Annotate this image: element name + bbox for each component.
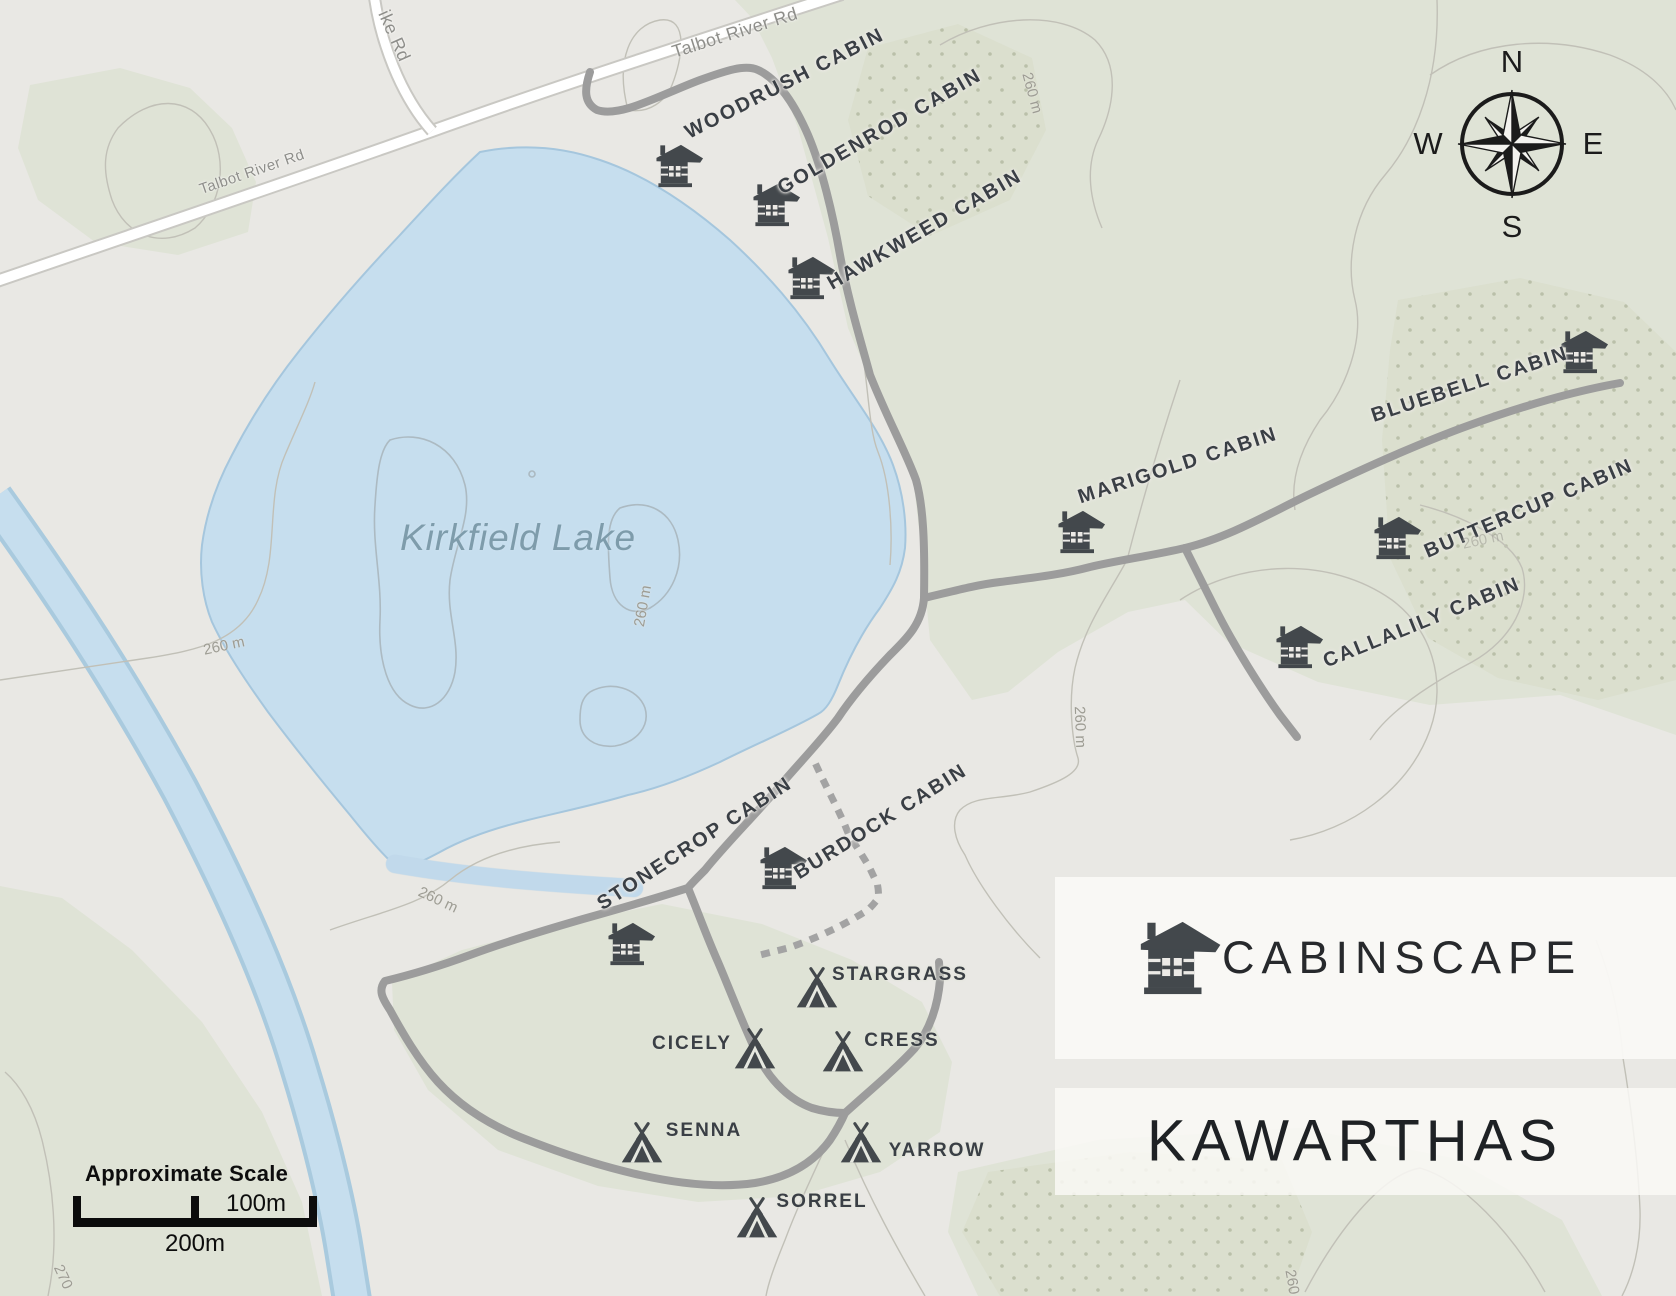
compass-south-label: S xyxy=(1502,209,1523,245)
cabin-icon-marigold xyxy=(1058,506,1106,558)
scale-200m-label: 200m xyxy=(73,1230,317,1258)
label-yarrow: YARROW xyxy=(889,1140,986,1162)
label-kirkfield-lake: Kirkfield Lake xyxy=(400,517,636,559)
label-sorrel: SORREL xyxy=(776,1191,867,1213)
label-senna: SENNA xyxy=(666,1120,743,1142)
tent-icon-cicely xyxy=(733,1027,777,1071)
tent-icon-senna xyxy=(620,1121,664,1165)
compass-west-label: W xyxy=(1413,126,1442,162)
label-cress: CRESS xyxy=(864,1030,939,1052)
cabin-icon-callalily xyxy=(1276,621,1324,673)
label-stargrass: STARGRASS xyxy=(832,964,968,986)
compass-rose xyxy=(1450,82,1574,206)
contour-label-260-east: 260 m xyxy=(1071,706,1089,748)
cabinscape-logo-icon xyxy=(1140,914,1222,1002)
cabin-icon-buttercup xyxy=(1374,512,1422,564)
compass-east-label: E xyxy=(1583,126,1604,162)
brand-region: KAWARTHAS xyxy=(1147,1108,1563,1175)
map-canvas: WOODRUSH CABIN GOLDENROD CABIN HAWKWEED … xyxy=(0,0,1676,1296)
tent-icon-cress xyxy=(821,1030,865,1074)
cabin-icon-woodrush xyxy=(656,140,704,192)
cabin-icon-bluebell xyxy=(1561,326,1609,378)
scale-100m-label: 100m xyxy=(195,1190,317,1218)
scale-title: Approximate Scale xyxy=(85,1161,288,1187)
brand-name: CABINSCAPE xyxy=(1222,932,1582,984)
cabin-icon-stonecrop xyxy=(608,918,656,970)
label-cicely: CICELY xyxy=(652,1033,732,1055)
scale-tick-left xyxy=(73,1196,81,1227)
tent-icon-sorrel xyxy=(735,1196,779,1240)
compass-north-label: N xyxy=(1501,44,1523,80)
tent-icon-yarrow xyxy=(839,1121,883,1165)
